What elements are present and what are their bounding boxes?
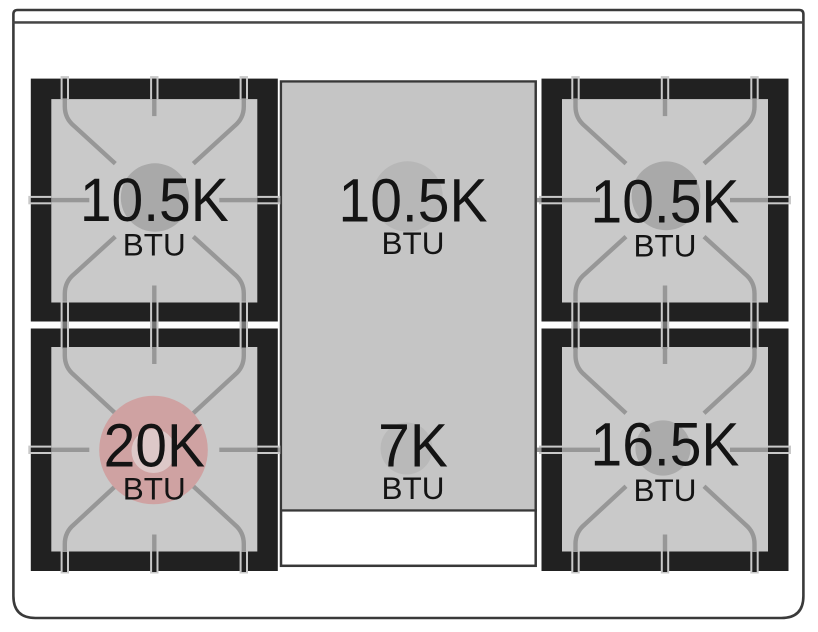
svg-text:10.5K: 10.5K [80, 165, 229, 235]
svg-text:BTU: BTU [123, 226, 186, 262]
svg-text:BTU: BTU [123, 471, 186, 507]
svg-text:20K: 20K [104, 410, 205, 480]
svg-text:BTU: BTU [382, 470, 445, 506]
svg-text:10.5K: 10.5K [591, 166, 740, 236]
svg-text:BTU: BTU [634, 472, 697, 508]
svg-text:16.5K: 16.5K [591, 410, 740, 480]
svg-text:BTU: BTU [634, 228, 697, 264]
svg-text:BTU: BTU [382, 225, 445, 261]
